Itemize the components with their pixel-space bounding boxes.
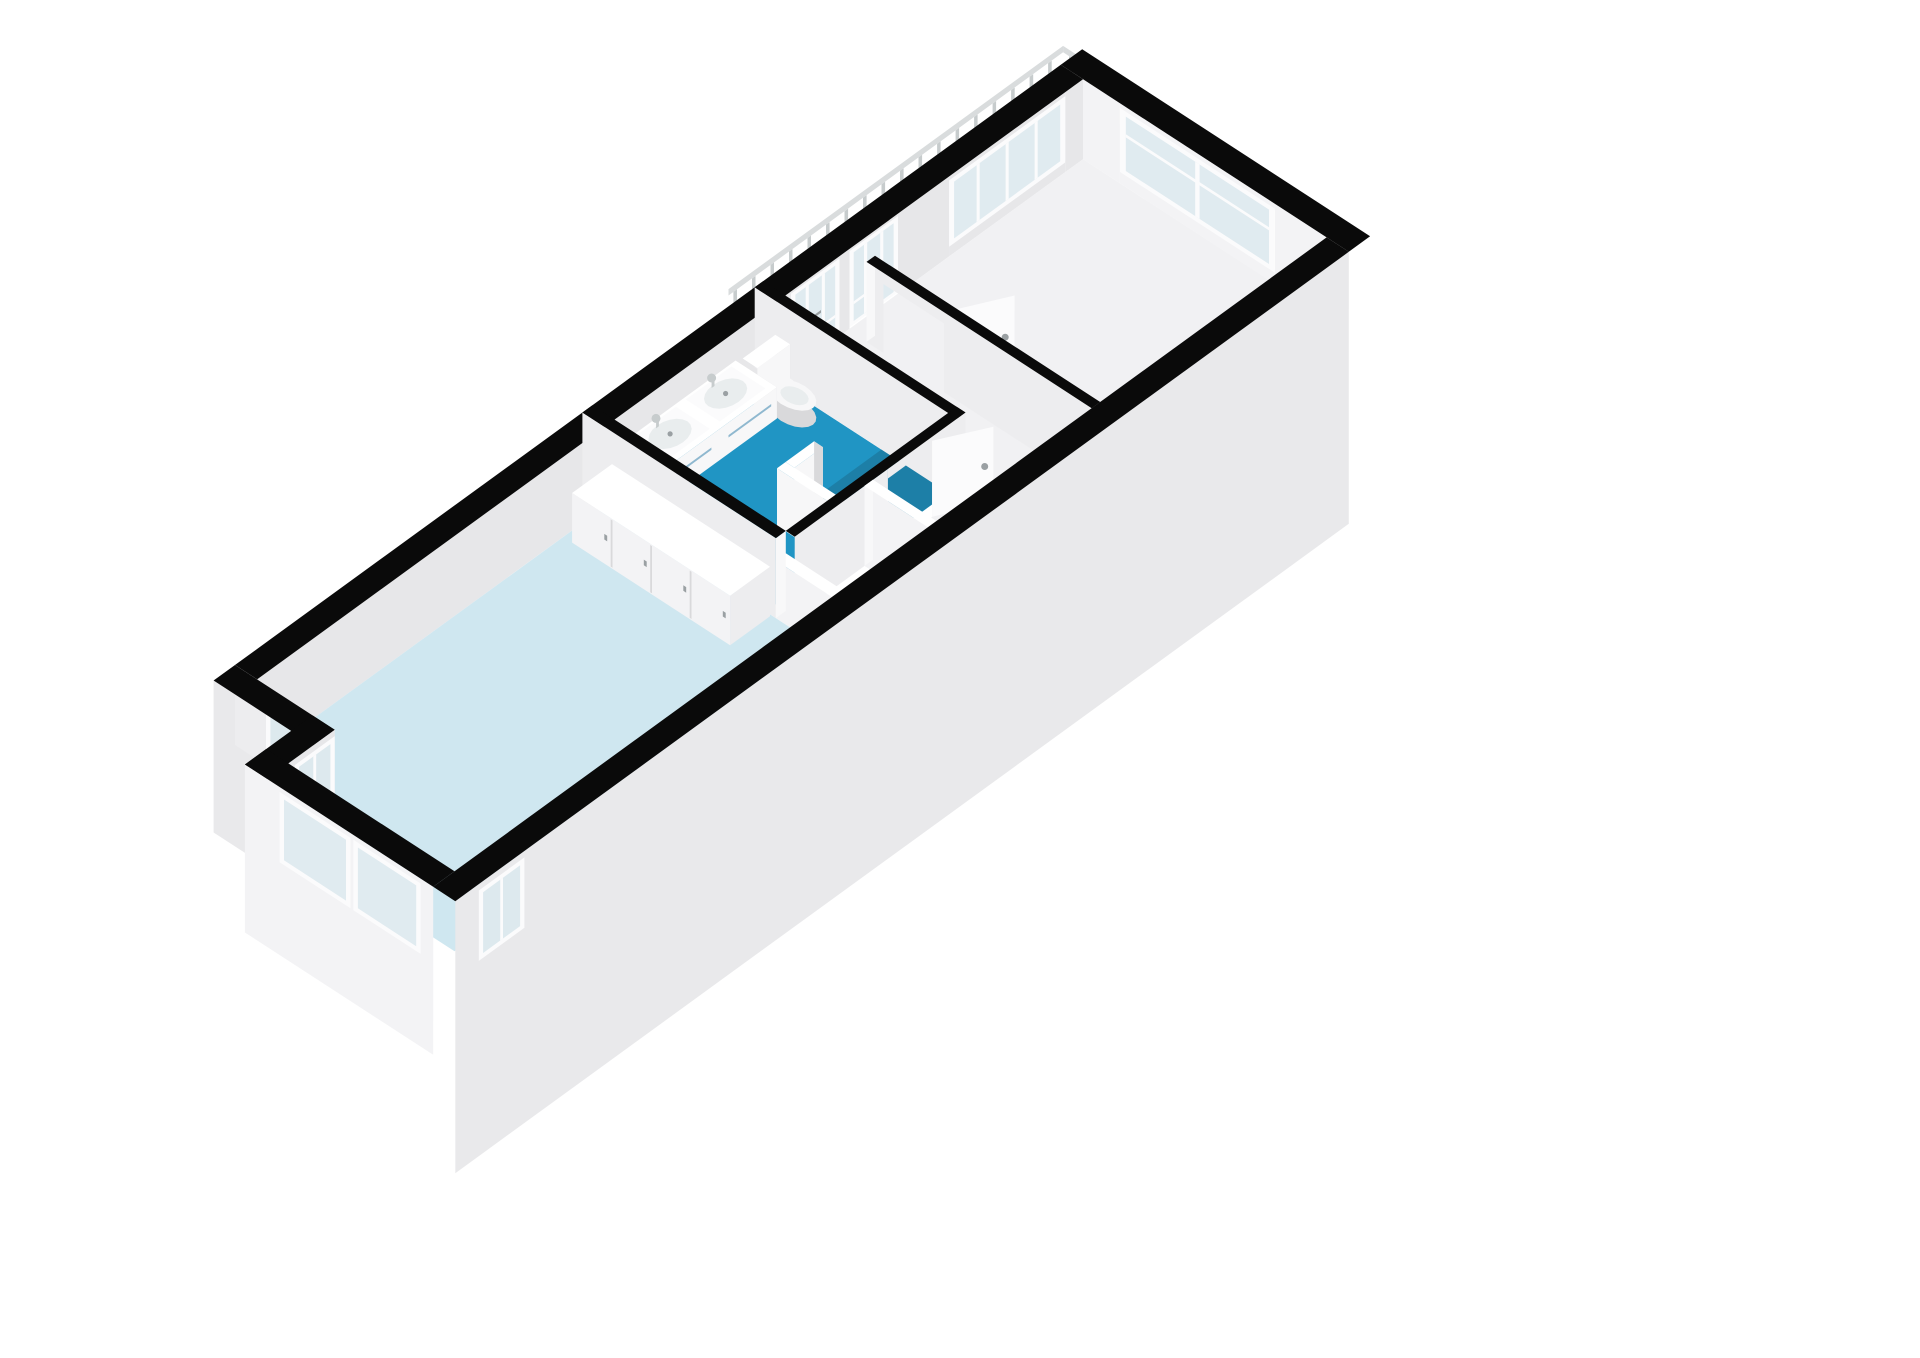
door-handle <box>981 463 988 470</box>
closet-door-gap <box>611 519 613 567</box>
window-mullion <box>1006 142 1009 201</box>
window-mullion <box>1035 121 1038 180</box>
window-mullion <box>500 878 503 941</box>
wall-cap <box>776 531 786 618</box>
wall-cap <box>867 256 876 342</box>
closet-door-gap <box>650 545 652 593</box>
floorplan-3d <box>0 0 1920 1358</box>
wall-face <box>840 249 850 336</box>
window-mullion <box>1195 162 1199 219</box>
sink-drain <box>723 391 728 396</box>
wall-face <box>1065 79 1083 172</box>
closet-door-gap <box>690 571 692 619</box>
sink-faucet <box>652 414 661 423</box>
wall-cap <box>865 480 874 566</box>
window-mullion <box>977 163 980 222</box>
sink-drain <box>668 431 673 436</box>
floorplan-scene <box>0 0 1920 1358</box>
